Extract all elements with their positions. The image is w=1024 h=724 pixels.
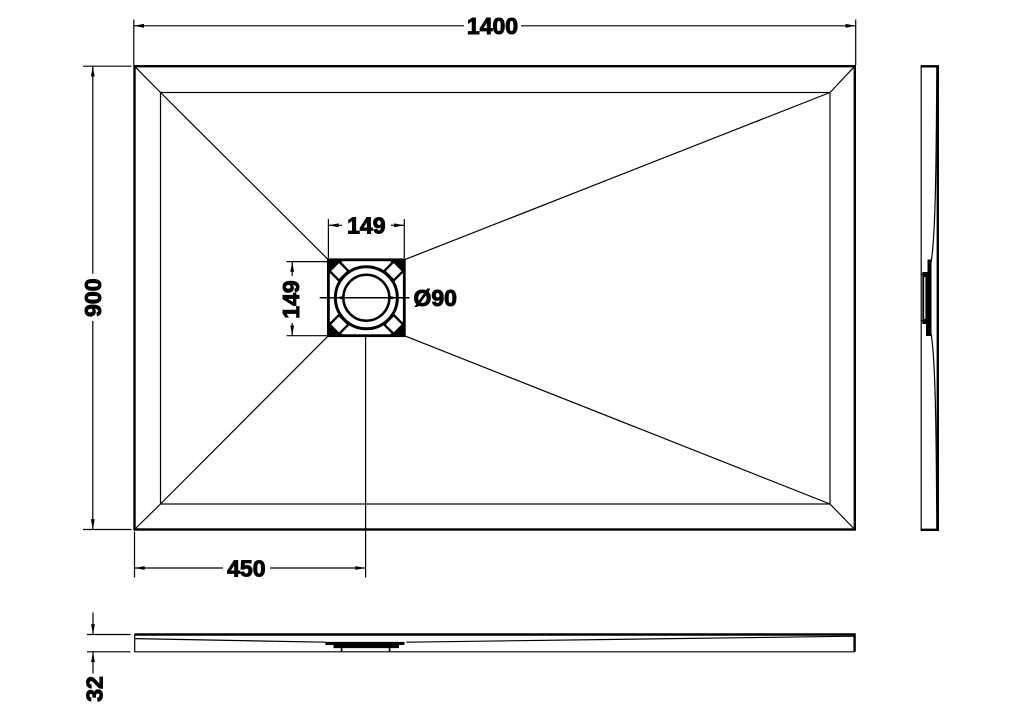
svg-text:Ø90: Ø90 — [414, 285, 457, 311]
svg-text:450: 450 — [227, 555, 265, 581]
svg-text:32: 32 — [81, 676, 107, 702]
svg-text:900: 900 — [80, 279, 106, 317]
svg-text:149: 149 — [278, 280, 304, 318]
svg-text:1400: 1400 — [467, 13, 518, 39]
svg-text:149: 149 — [347, 213, 385, 239]
